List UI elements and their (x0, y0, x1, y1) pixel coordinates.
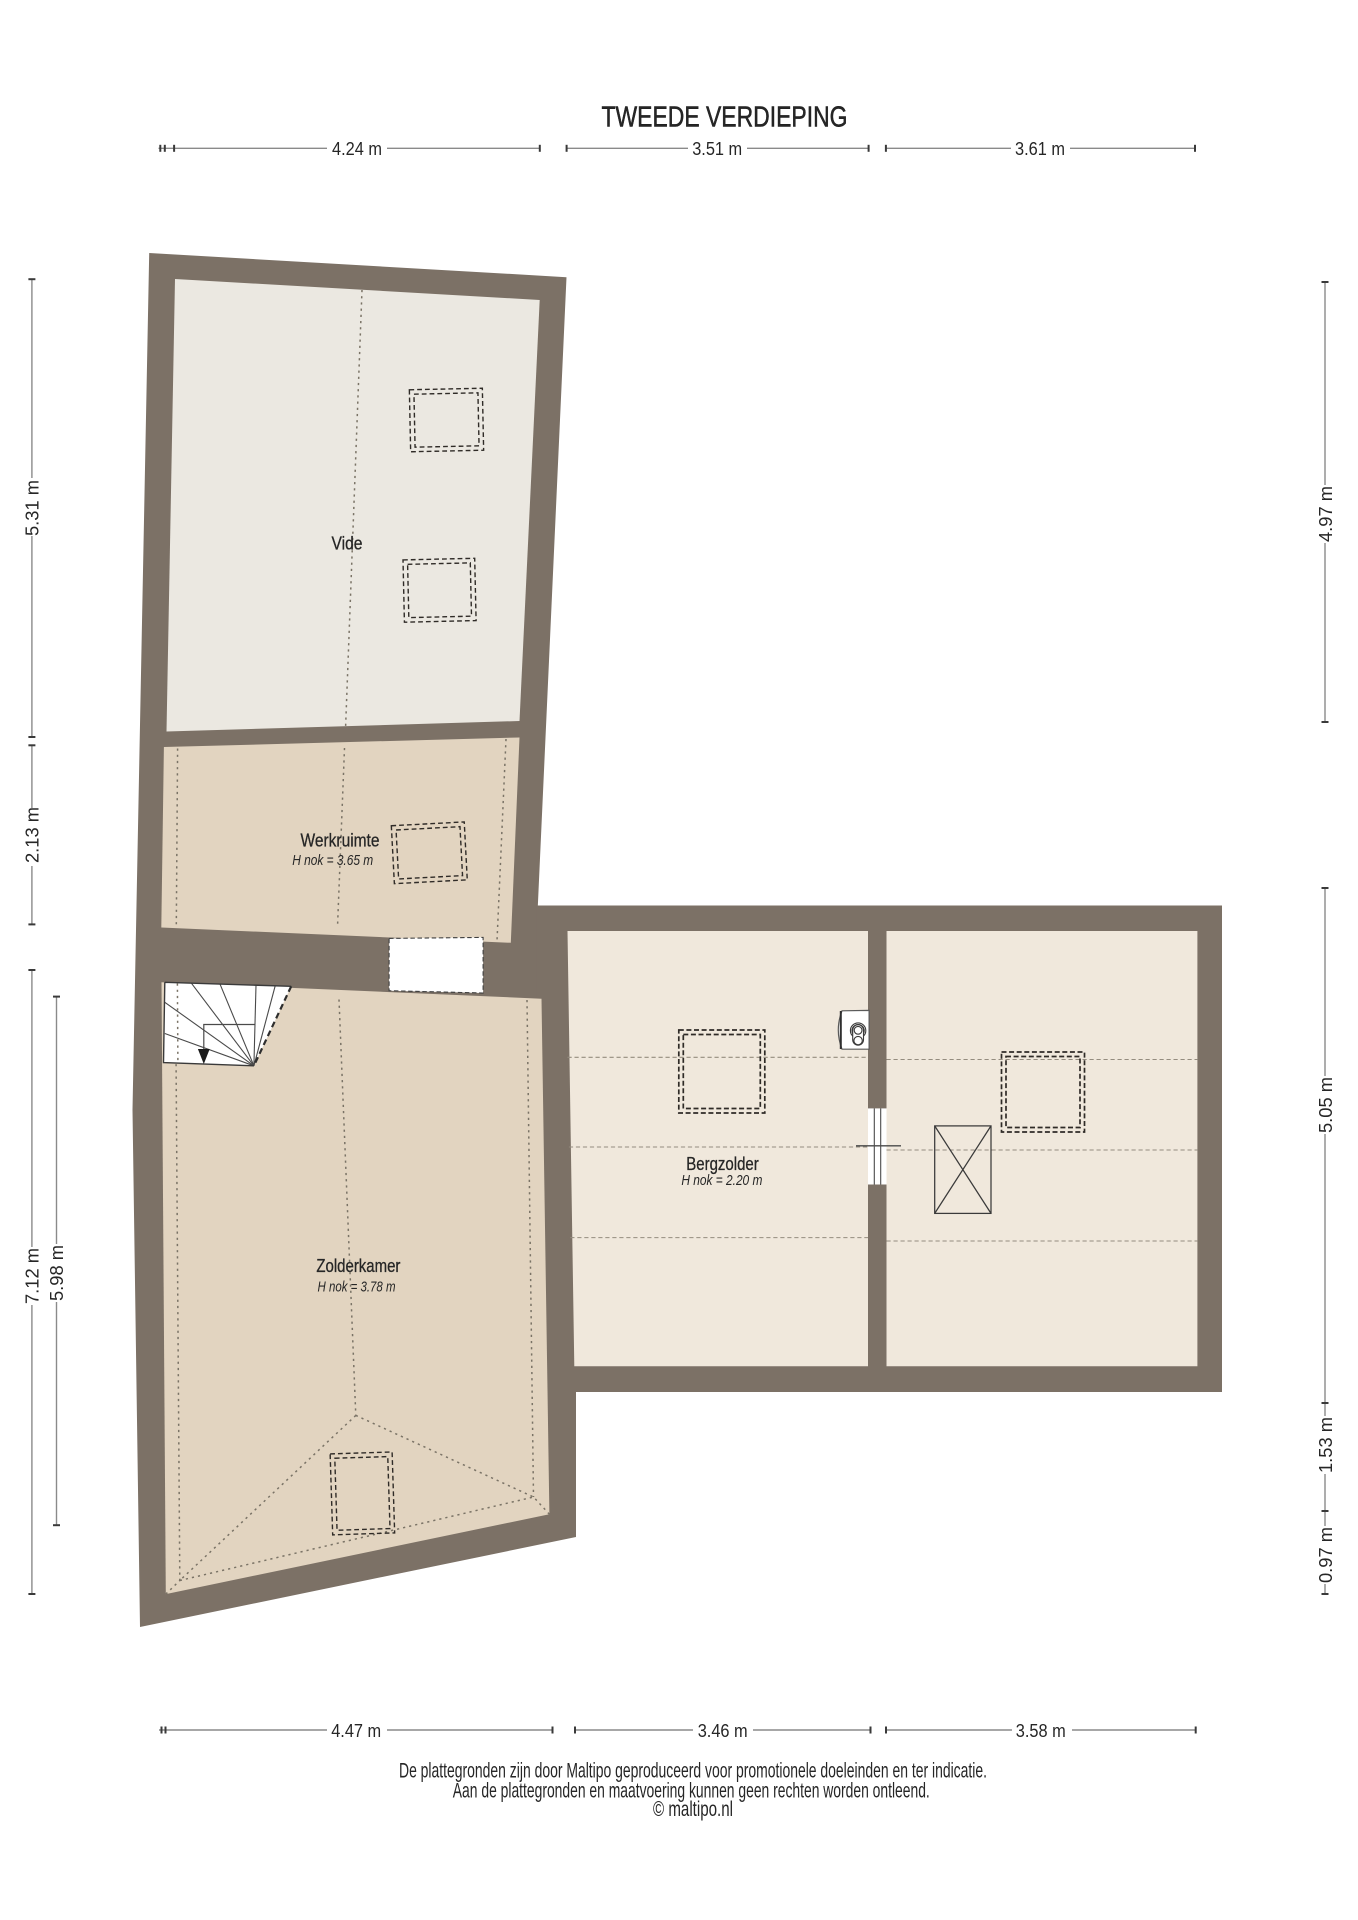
svg-text:© maltipo.nl: © maltipo.nl (653, 1798, 733, 1821)
svg-text:Zolderkamer: Zolderkamer (316, 1255, 400, 1276)
svg-text:H nok = 3.65 m: H nok = 3.65 m (292, 853, 373, 869)
svg-text:Vide: Vide (332, 533, 363, 554)
svg-text:3.61 m: 3.61 m (1015, 138, 1065, 159)
svg-text:7.12 m: 7.12 m (21, 1248, 42, 1304)
svg-text:2.13 m: 2.13 m (21, 807, 42, 863)
svg-text:3.51 m: 3.51 m (692, 138, 742, 159)
svg-text:H nok = 2.20 m: H nok = 2.20 m (681, 1173, 762, 1189)
svg-text:0.97 m: 0.97 m (1315, 1527, 1336, 1583)
svg-text:Werkruimte: Werkruimte (301, 829, 380, 850)
svg-text:1.53 m: 1.53 m (1315, 1417, 1336, 1473)
svg-text:Bergzolder: Bergzolder (686, 1153, 759, 1174)
svg-text:4.24 m: 4.24 m (332, 138, 382, 159)
svg-text:5.31 m: 5.31 m (21, 480, 42, 536)
svg-text:4.97 m: 4.97 m (1315, 486, 1336, 542)
svg-text:TWEEDE VERDIEPING: TWEEDE VERDIEPING (602, 102, 848, 134)
svg-text:3.58 m: 3.58 m (1016, 1720, 1066, 1741)
svg-text:H nok = 3.78 m: H nok = 3.78 m (318, 1280, 396, 1296)
svg-text:5.98 m: 5.98 m (46, 1245, 67, 1301)
svg-text:4.47 m: 4.47 m (331, 1720, 381, 1741)
svg-text:5.05 m: 5.05 m (1315, 1077, 1336, 1133)
svg-text:3.46 m: 3.46 m (698, 1720, 748, 1741)
